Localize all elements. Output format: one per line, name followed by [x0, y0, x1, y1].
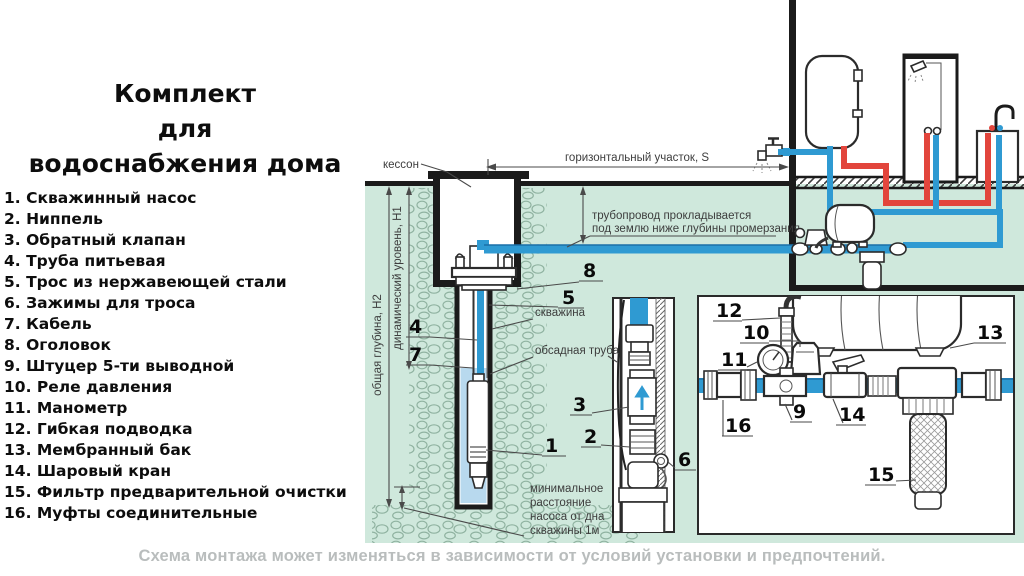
- callout-13: 13: [977, 322, 1003, 344]
- callout-16: 16: [725, 415, 751, 437]
- ground-line: [365, 181, 433, 186]
- page: Комплект для водоснабжения дома 1. Скваж…: [0, 0, 1024, 576]
- label-min-dist-1: минимальное: [530, 483, 603, 495]
- label-total-depth: общая глубина, Н2: [372, 294, 384, 396]
- callout-5: 5: [562, 287, 575, 309]
- callout-6: 6: [678, 449, 691, 471]
- union-fitting: [868, 376, 896, 396]
- callout-7: 7: [409, 344, 422, 366]
- label-caisson: кессон: [383, 159, 419, 171]
- callout-2: 2: [584, 426, 597, 448]
- coupling-left: [704, 370, 756, 400]
- installation-diagram: общая глубина, Н2 динамический уровень, …: [0, 0, 1024, 576]
- foundation-line: [789, 285, 1024, 291]
- water-heater: [806, 56, 862, 148]
- footer-caption: Схема монтажа может изменяться в зависим…: [0, 547, 1024, 566]
- filter-small: [860, 252, 884, 262]
- ground-line: [521, 181, 791, 186]
- borehole-pump: [468, 374, 489, 488]
- caisson-lid: [428, 171, 529, 179]
- shower-cabin: [904, 55, 957, 182]
- callout-8: 8: [583, 260, 596, 282]
- callout-15: 15: [868, 464, 894, 486]
- callout-12: 12: [716, 300, 742, 322]
- stone-band: [520, 188, 547, 285]
- callout-11: 11: [721, 349, 747, 371]
- callout-9: 9: [793, 401, 806, 423]
- inset-equipment-detail: [698, 268, 1014, 534]
- coupling-right: [962, 370, 1001, 400]
- label-min-dist-2: расстояние: [530, 497, 591, 509]
- callout-4: 4: [409, 316, 422, 338]
- pressure-relay: [791, 343, 820, 374]
- callout-3: 3: [573, 394, 586, 416]
- label-dynamic-level: динамический уровень, Н1: [392, 206, 404, 350]
- label-pipe-depth-1: трубопровод прокладывается: [592, 210, 751, 222]
- inset-pump-detail: [613, 298, 674, 534]
- membrane-tank-small: [826, 205, 874, 242]
- callout-10: 10: [743, 322, 769, 344]
- stone-band: [409, 188, 434, 285]
- label-borehole: скважина: [535, 307, 586, 319]
- label-min-dist-3: насоса от дна: [530, 511, 605, 523]
- label-min-dist-4: скважины 1м: [530, 525, 599, 537]
- label-pipe-depth-2: под землю ниже глубины промерзания: [592, 223, 800, 235]
- label-horizontal-run: горизонтальный участок, S: [565, 152, 709, 164]
- callout-1: 1: [545, 435, 558, 457]
- horizontal-run-dimension: горизонтальный участок, S: [486, 152, 789, 175]
- label-casing-pipe: обсадная труба: [535, 345, 620, 357]
